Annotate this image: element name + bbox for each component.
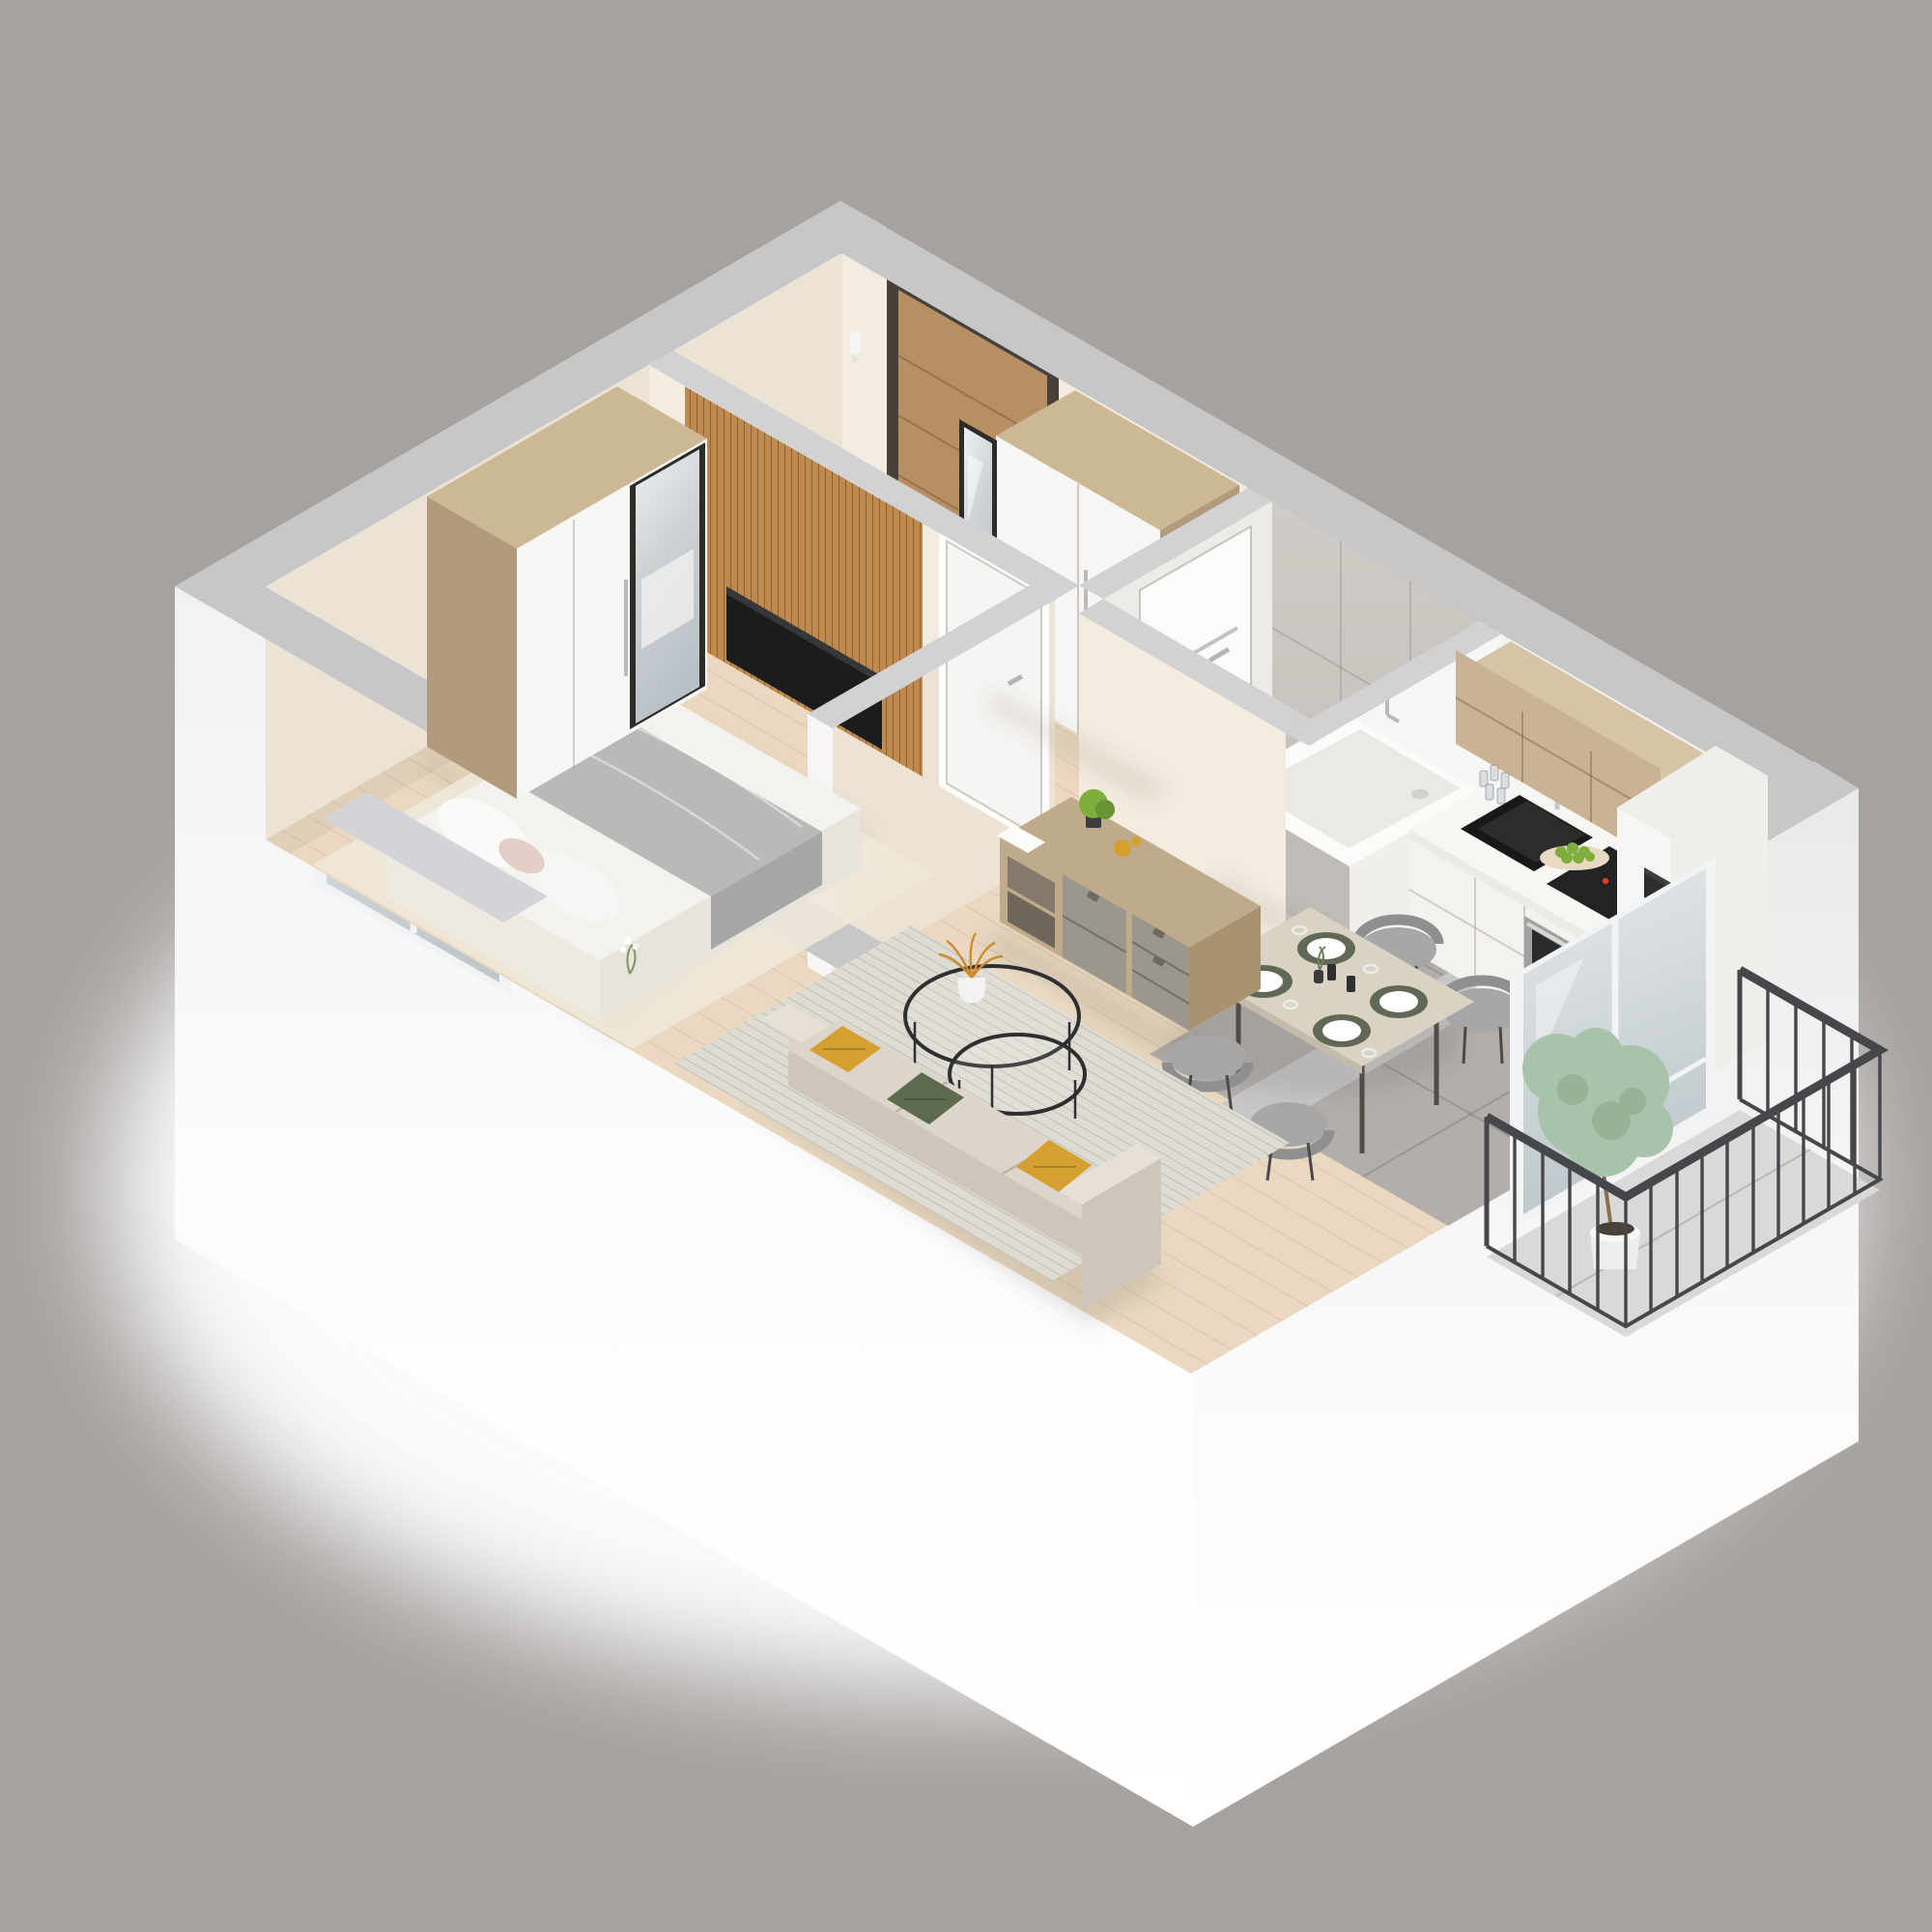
- place-setting-4: [1313, 1014, 1371, 1047]
- sideboard-decor-disc-small: [1131, 837, 1141, 846]
- apartment-isometric-scene: [0, 0, 1932, 1932]
- place-setting-1: [1297, 932, 1355, 965]
- sideboard-decor-disc: [1114, 839, 1131, 857]
- bathtub-drain: [1411, 789, 1429, 799]
- bedroom-wardrobe-sideface: [427, 497, 517, 799]
- floorplan-render: [0, 0, 1932, 1932]
- hob-display: [1603, 878, 1608, 884]
- place-setting-2: [1370, 985, 1428, 1018]
